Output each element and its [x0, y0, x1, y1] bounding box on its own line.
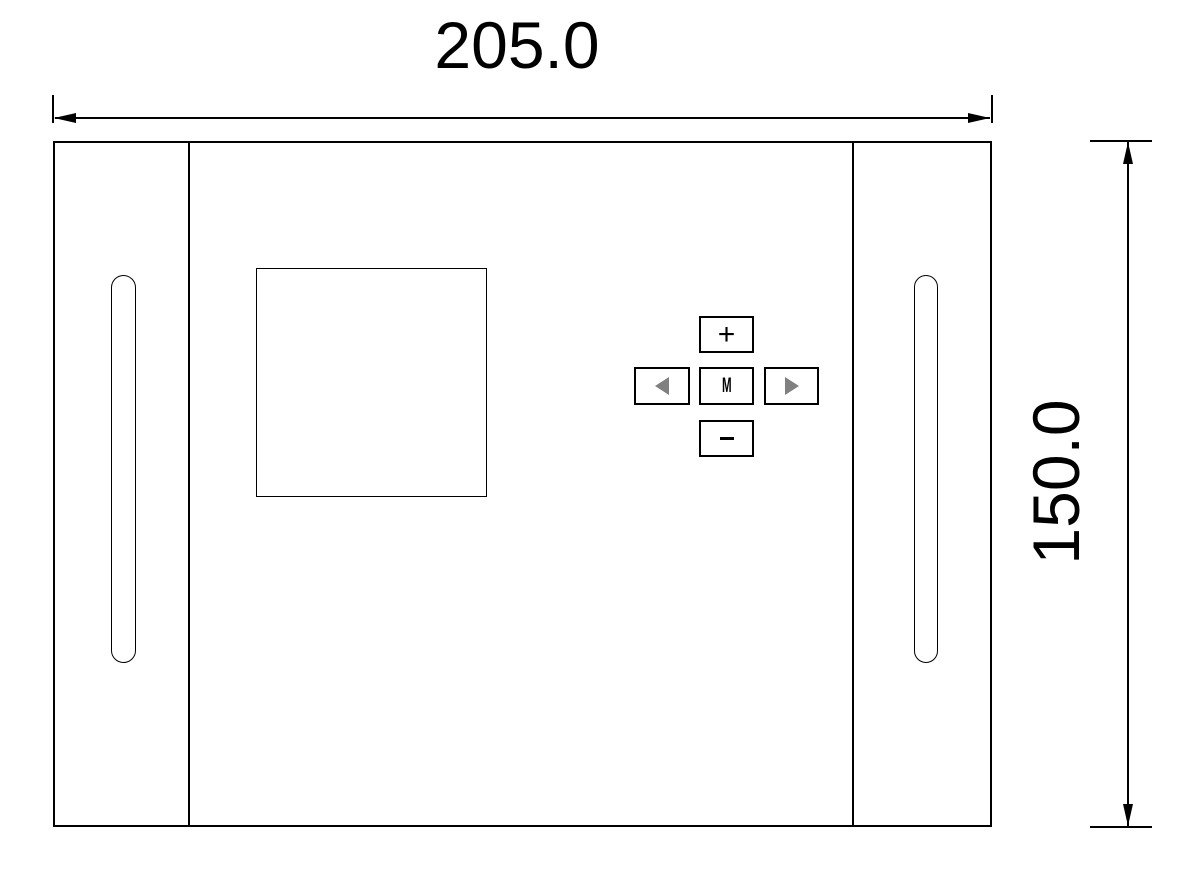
plus-button: +	[699, 316, 754, 353]
panel-divider-left	[188, 141, 190, 827]
height-dimension-line	[1127, 142, 1129, 826]
width-dimension-label: 205.0	[434, 12, 599, 78]
menu-button-label: M	[722, 374, 732, 398]
panel-divider-right	[852, 141, 854, 827]
right-triangle-icon	[785, 377, 799, 395]
mounting-slot-right	[914, 275, 938, 663]
display-window	[256, 268, 487, 497]
width-dimension-line	[55, 117, 990, 119]
left-triangle-icon	[655, 377, 669, 395]
mounting-slot-left	[111, 275, 136, 663]
dimension-arrow-down-icon	[1123, 804, 1133, 826]
extension-line-bottom	[1090, 826, 1152, 828]
minus-button-glyph	[720, 437, 734, 440]
right-arrow-button	[764, 367, 819, 405]
dimension-arrow-right-icon	[968, 113, 990, 123]
minus-button	[699, 420, 754, 457]
extension-line-top	[1090, 140, 1152, 142]
menu-button: M	[699, 367, 754, 405]
extension-line-right	[991, 95, 993, 123]
height-dimension-label: 150.0	[1023, 399, 1089, 564]
left-arrow-button	[634, 367, 690, 405]
technical-drawing: 205.0 150.0 + M	[0, 0, 1192, 871]
dimension-arrow-up-icon	[1123, 142, 1133, 164]
plus-button-label: +	[718, 318, 736, 352]
dimension-arrow-left-icon	[54, 113, 76, 123]
